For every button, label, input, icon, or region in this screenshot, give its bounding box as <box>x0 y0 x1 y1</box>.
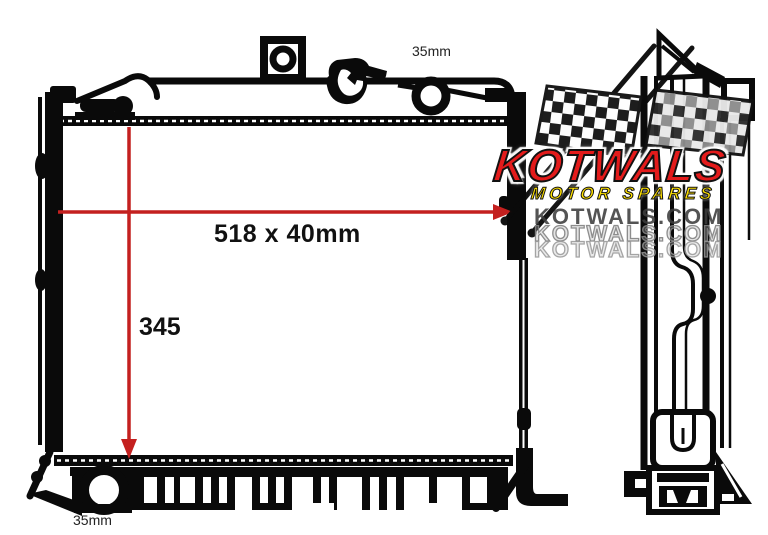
height-dimension-arrow <box>121 127 137 459</box>
core-height-label: 345 <box>139 313 181 342</box>
watermark-website-text-3: KOTWALS.COM <box>534 237 723 263</box>
width-dimension-arrow <box>58 204 513 220</box>
diagram-linework <box>0 0 768 535</box>
top-port-diameter-label: 35mm <box>412 43 451 59</box>
bottom-port-diameter-label: 35mm <box>73 512 112 528</box>
radiator-front-view <box>28 40 568 516</box>
radiator-diagram-page: 518 x 40mm 345 35mm 35mm KOTWALS MOTOR S… <box>0 0 768 535</box>
watermark-tagline-text: MOTOR SPARES <box>530 184 716 204</box>
dimension-arrows <box>58 127 513 459</box>
core-size-label: 518 x 40mm <box>214 220 361 249</box>
